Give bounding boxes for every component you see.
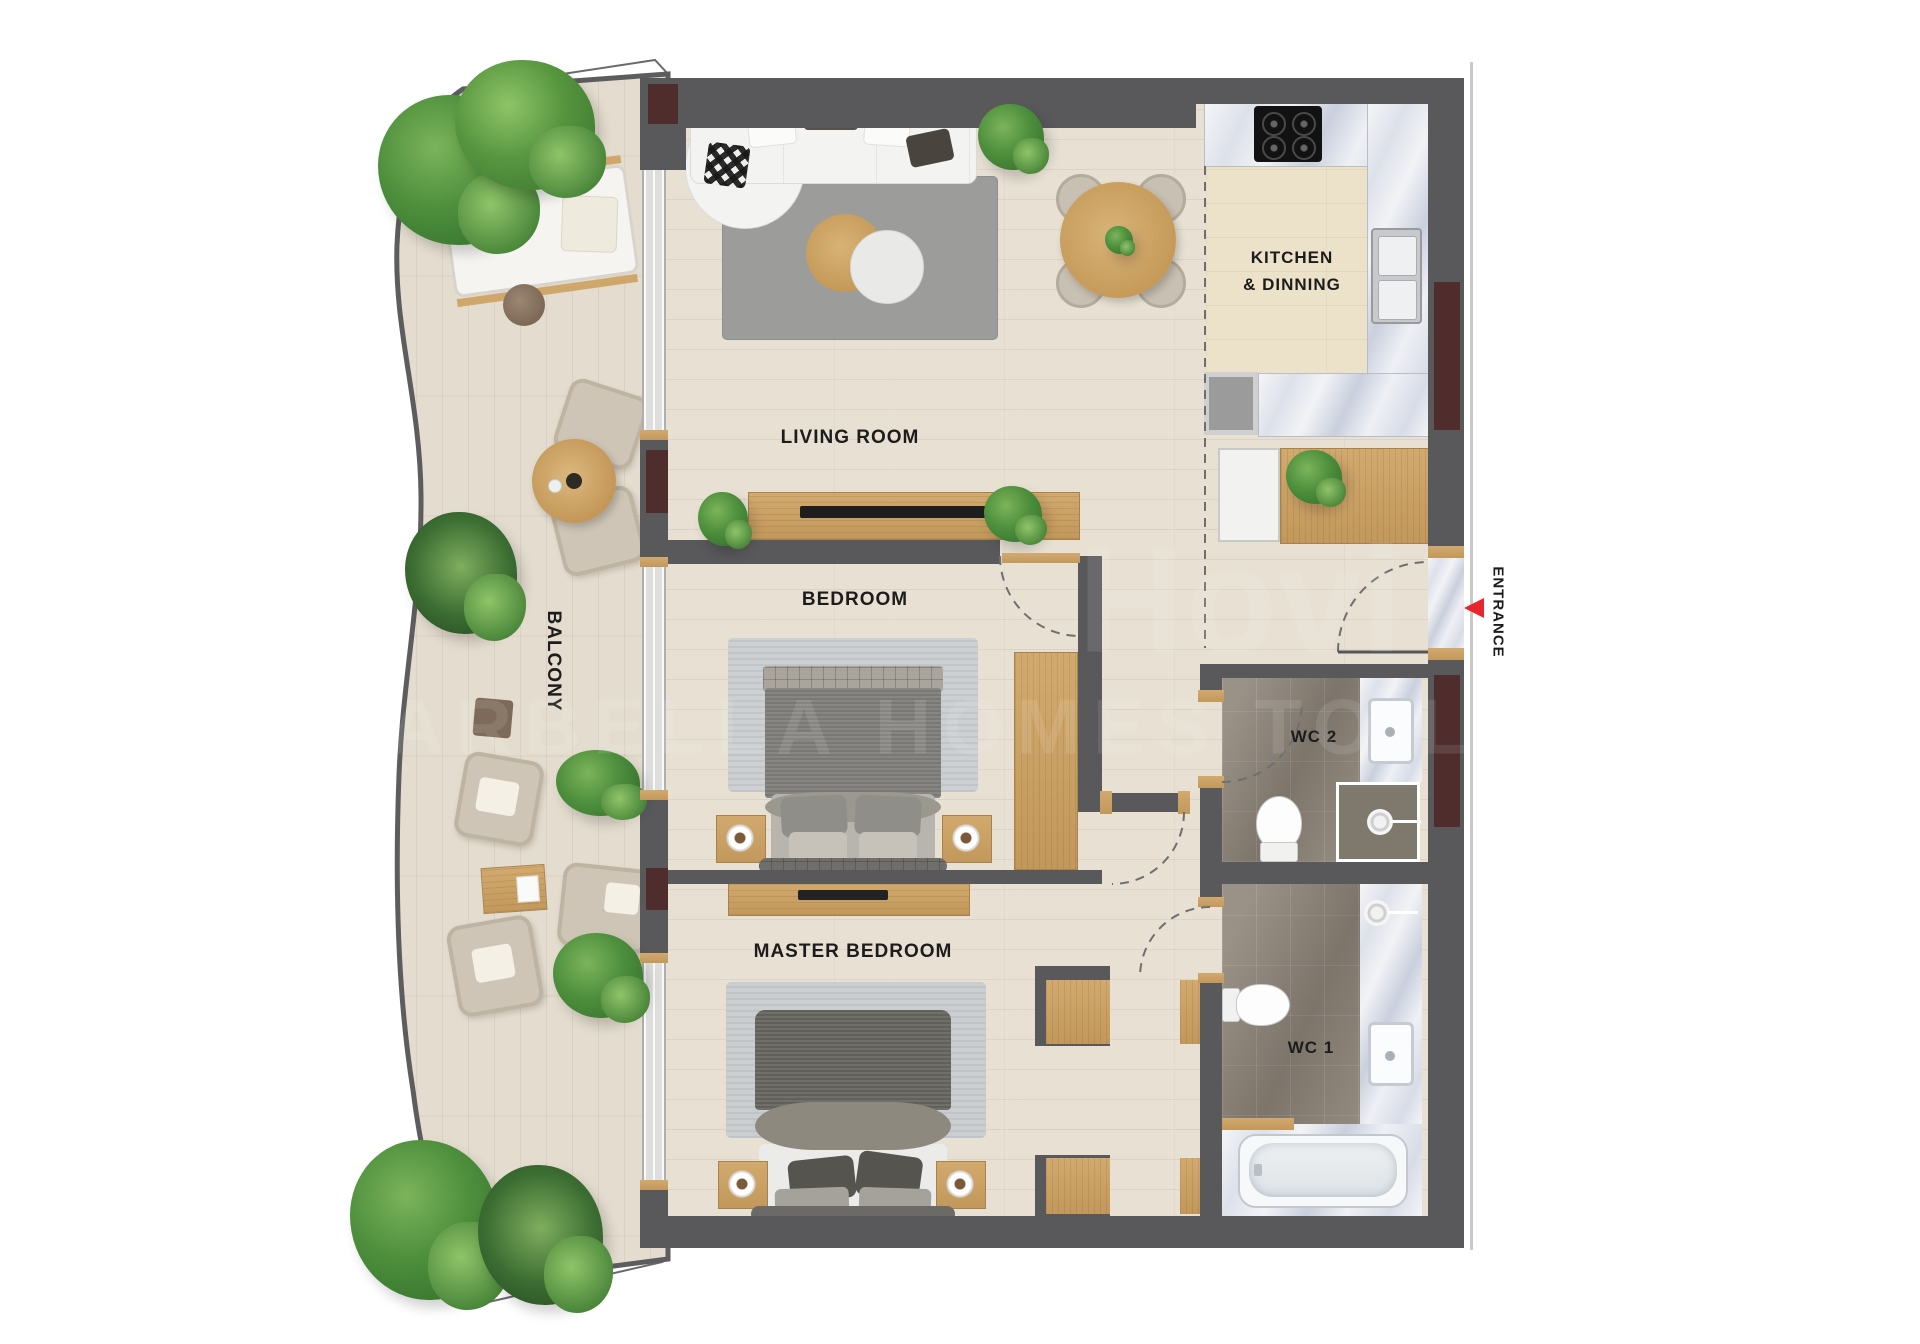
door-jamb — [1428, 648, 1464, 660]
door-jamb — [1428, 546, 1464, 558]
wall-segment — [640, 1190, 668, 1218]
side-stool — [503, 284, 545, 326]
door-jamb — [1198, 973, 1224, 983]
tv — [800, 506, 1015, 518]
plant — [553, 933, 643, 1018]
wall-stub — [1112, 793, 1178, 812]
entrance-threshold — [1428, 556, 1464, 652]
dresser-tv — [798, 890, 888, 900]
burner-icon — [1292, 112, 1316, 136]
window-sill — [640, 1180, 668, 1190]
sofa-pillow — [604, 882, 641, 915]
wall-bedroom-hall — [1078, 556, 1102, 812]
lamp-icon — [945, 1169, 975, 1199]
drain-icon — [1385, 1051, 1395, 1061]
sofa-pillow-checkered — [703, 141, 750, 188]
master-fold — [755, 1102, 951, 1150]
wardrobe — [1014, 652, 1078, 870]
armchair-pillow — [471, 943, 516, 983]
kitchen-counter-bottom — [1258, 373, 1430, 437]
shower-head-icon — [1367, 809, 1393, 835]
plot-boundary-line — [1470, 62, 1473, 1250]
daybed-pillow — [561, 195, 619, 253]
wc2-label: WC 2 — [1291, 727, 1338, 747]
bathtub — [1238, 1134, 1408, 1208]
wall-accent — [648, 84, 678, 124]
cooktop — [1254, 106, 1322, 162]
lamp-icon — [725, 823, 755, 853]
wall-accent — [1434, 675, 1460, 827]
window-sill — [640, 953, 668, 963]
closet-narrow — [1180, 1158, 1202, 1214]
entrance-arrow-icon — [1464, 598, 1484, 618]
closet-narrow — [1180, 980, 1202, 1044]
coffee-table-white — [850, 230, 924, 304]
plant — [978, 104, 1044, 170]
wc1-label: WC 1 — [1288, 1038, 1335, 1058]
glass-icon — [548, 479, 562, 493]
magazine — [516, 875, 540, 902]
door-jamb — [1198, 897, 1224, 907]
sink-basin — [1378, 236, 1417, 276]
floor-plan: LIVING ROOM KITCHEN & DINNING BEDROOM MA… — [0, 0, 1920, 1344]
wall-accent — [1434, 282, 1460, 430]
bedroom-label: BEDROOM — [802, 589, 908, 611]
lamp-icon — [951, 823, 981, 853]
door-jamb — [1178, 791, 1190, 814]
wall-right — [1428, 78, 1464, 1248]
burner-icon — [1262, 136, 1286, 160]
wc1-toilet-bowl — [1236, 984, 1290, 1026]
plant — [556, 750, 640, 816]
wall-accent — [646, 450, 668, 513]
wc2-wall-top — [1200, 664, 1428, 678]
window-sill — [640, 557, 668, 567]
balcony-coffee-table — [480, 864, 547, 914]
sink-basin — [1378, 280, 1417, 320]
entrance-label: ENTRANCE — [1490, 566, 1507, 657]
master-duvet — [755, 1010, 951, 1110]
window-strip — [642, 567, 666, 800]
vase-icon — [566, 473, 582, 489]
bed-duvet — [765, 688, 941, 798]
wall-bottom — [640, 1216, 1464, 1248]
shower-head-icon — [1364, 900, 1390, 926]
wall-segment — [1196, 78, 1464, 104]
kitchen-appliance — [1204, 372, 1258, 435]
wc2-shower — [1336, 782, 1420, 862]
door-jamb — [1198, 776, 1224, 788]
master-bedroom-label: MASTER BEDROOM — [754, 941, 953, 963]
wall-bedroom-master — [664, 870, 1102, 884]
wc1-wall-left — [1200, 975, 1222, 1216]
balcony-armchair — [445, 913, 546, 1019]
plant — [984, 486, 1042, 542]
drain-icon — [1385, 727, 1395, 737]
kitchen-label-line1: KITCHEN — [1251, 248, 1334, 268]
bathtub-basin — [1249, 1143, 1397, 1197]
burner-icon — [1292, 136, 1316, 160]
balcony-label: BALCONY — [542, 611, 564, 712]
small-table — [472, 697, 513, 738]
wc2-toilet-tank — [1260, 842, 1298, 862]
door-threshold — [1002, 553, 1080, 563]
bath-faucet-icon — [1254, 1164, 1262, 1176]
shower-arm — [1388, 911, 1418, 914]
wc2-sink — [1368, 698, 1414, 764]
table-plant — [1105, 226, 1133, 254]
wc1-sink — [1368, 1022, 1414, 1086]
kitchen-sink — [1371, 228, 1422, 324]
kitchen-label-line2: & DINNING — [1243, 275, 1341, 295]
window-sill — [640, 430, 668, 440]
kitchen-floor — [1206, 165, 1368, 374]
wall-accent — [646, 868, 668, 910]
door-jamb — [1100, 791, 1112, 814]
armchair-pillow — [475, 776, 520, 816]
plant — [698, 492, 748, 546]
window-sill — [640, 790, 668, 800]
balcony-armchair — [452, 750, 546, 849]
closet — [1046, 1158, 1110, 1214]
wc-wall-divider — [1200, 862, 1428, 884]
shower-arm — [1391, 820, 1421, 823]
plant — [1286, 450, 1342, 504]
closet — [1046, 980, 1110, 1044]
lamp-icon — [727, 1169, 757, 1199]
door-jamb — [1198, 690, 1224, 702]
living-room-label: LIVING ROOM — [781, 427, 920, 449]
wall-segment — [640, 78, 1196, 128]
burner-icon — [1262, 112, 1286, 136]
window-strip — [642, 170, 666, 440]
hall-cabinet-white — [1218, 448, 1280, 542]
bistro-table — [532, 439, 616, 523]
